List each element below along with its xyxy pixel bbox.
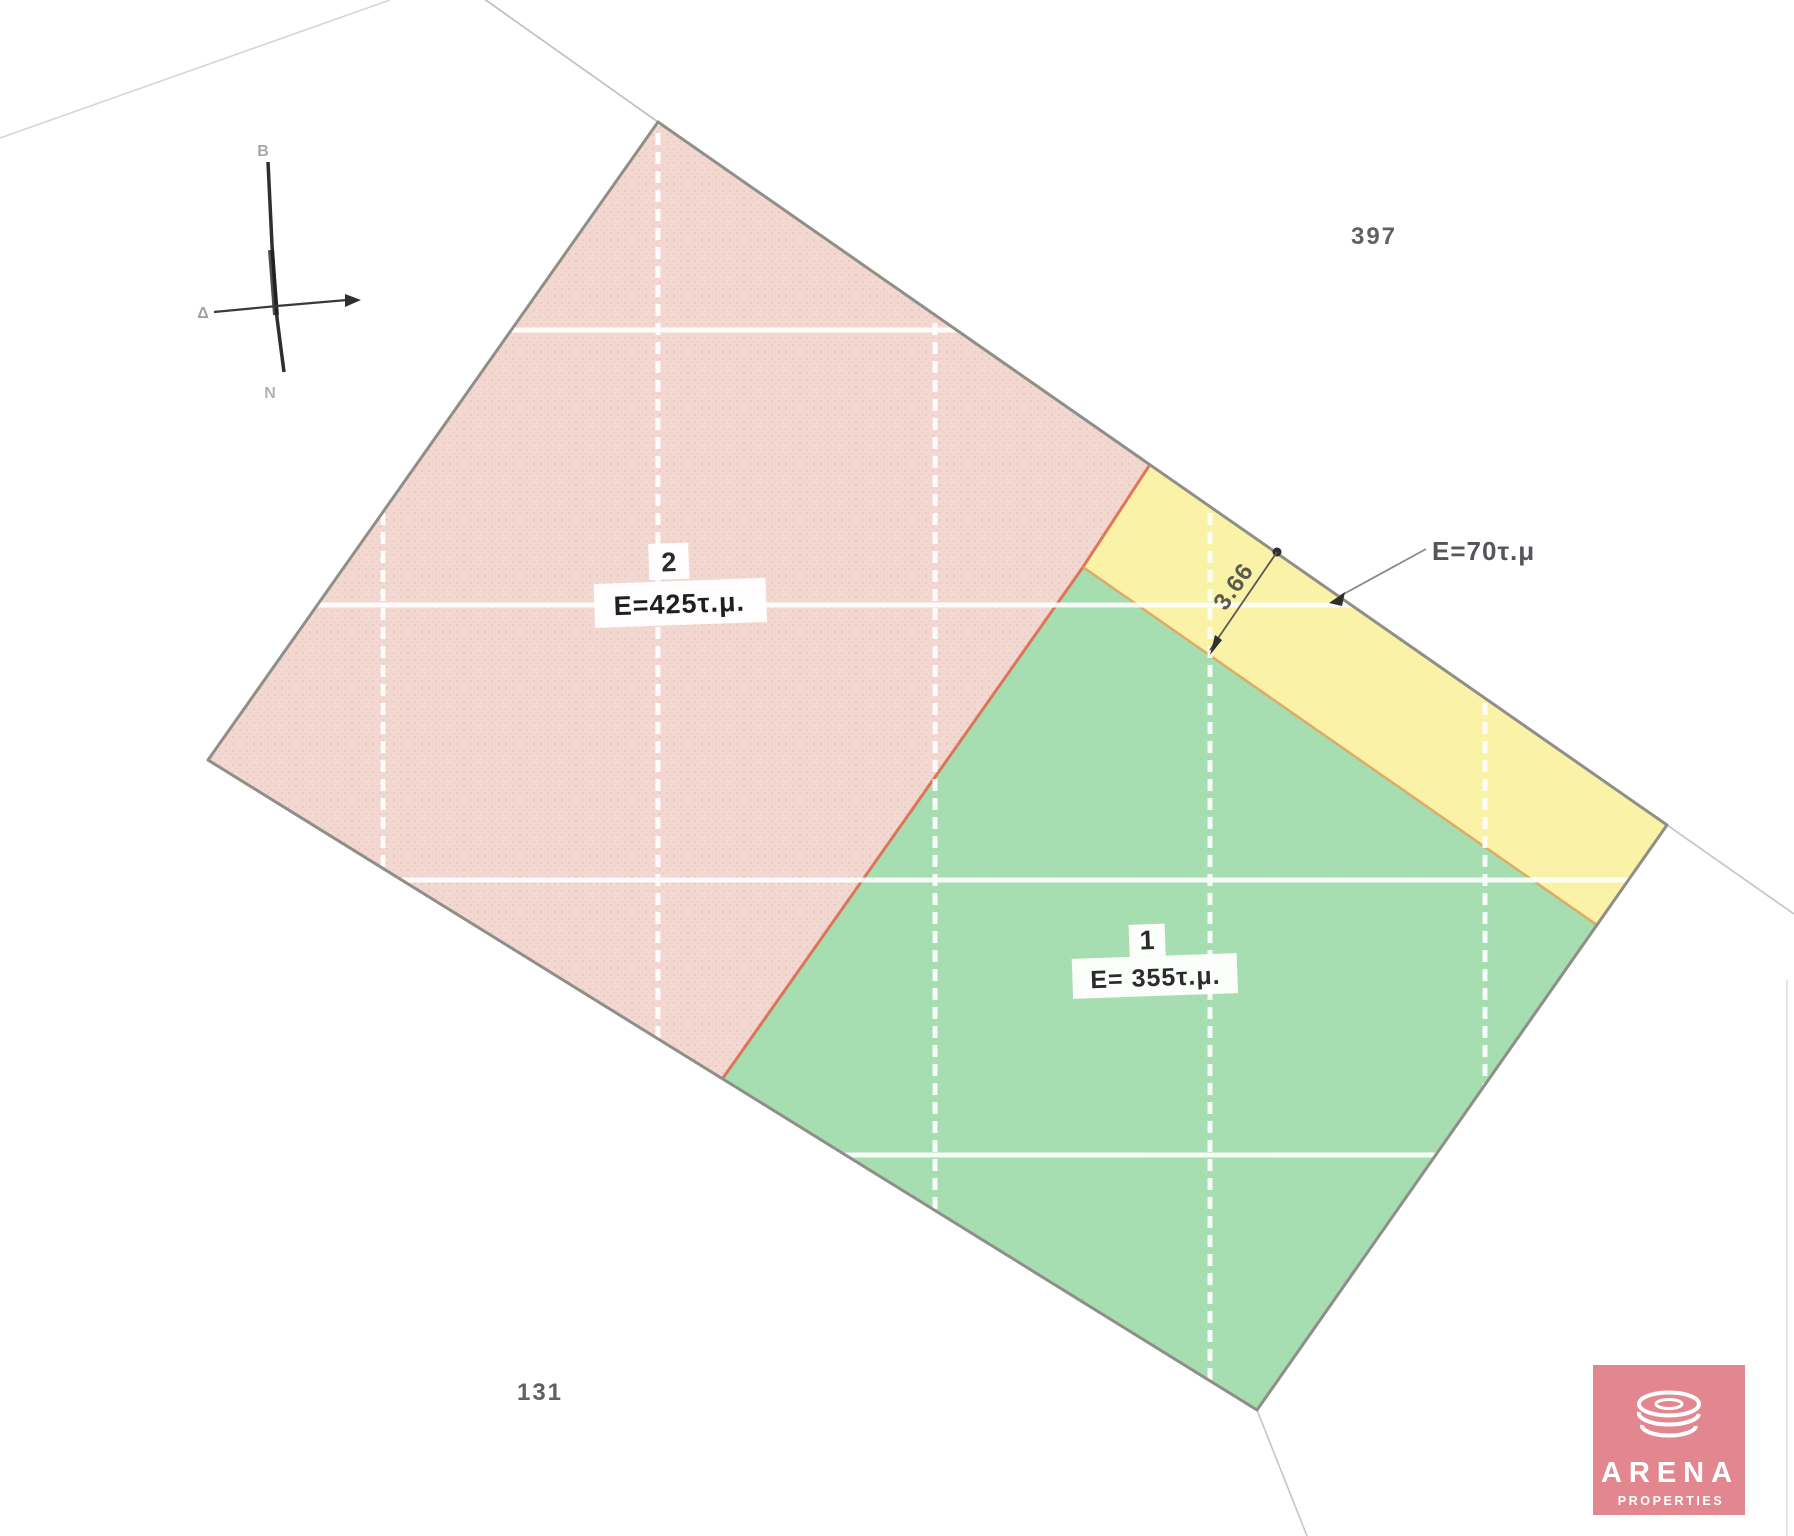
boundary-extension-south (1257, 1410, 1307, 1536)
compass-crossbar (214, 300, 347, 312)
logo-background (1593, 1365, 1745, 1515)
cadastral-plan-page: 3.66 E=70τ.μ 2 E=425τ.μ. 1 E= 355τ.μ. 39… (0, 0, 1794, 1536)
boundary-extension-east (1667, 825, 1794, 914)
leader-line (1340, 549, 1426, 596)
plan-drawing: 3.66 E=70τ.μ 2 E=425τ.μ. 1 E= 355τ.μ. 39… (0, 0, 1794, 1536)
compass-rose: B Δ N (197, 143, 361, 402)
compass-north-label: B (257, 143, 269, 160)
compass-west-label: Δ (197, 305, 209, 322)
adjacent-parcel-number-131: 131 (517, 1379, 563, 1406)
arena-properties-logo: ARENA PROPERTIES (1593, 1365, 1745, 1515)
boundary-extension-north (432, 0, 658, 122)
adjacent-parcel-number-397: 397 (1351, 223, 1397, 250)
plot-2-area-label: E=425τ.μ. (613, 587, 745, 622)
plot-2-number: 2 (661, 547, 677, 578)
plot-1-number: 1 (1139, 925, 1155, 956)
logo-tagline-text: PROPERTIES (1618, 1494, 1725, 1508)
strip-area-callout: E=70τ.μ (1329, 536, 1535, 606)
faint-line-top-left (0, 0, 390, 138)
compass-south-label: N (264, 385, 276, 402)
compass-east-arrow-icon (345, 294, 361, 307)
plot-1-area-label: E= 355τ.μ. (1090, 962, 1221, 995)
logo-brand-text: ARENA (1601, 1457, 1739, 1489)
strip-area-label: E=70τ.μ (1432, 536, 1535, 566)
